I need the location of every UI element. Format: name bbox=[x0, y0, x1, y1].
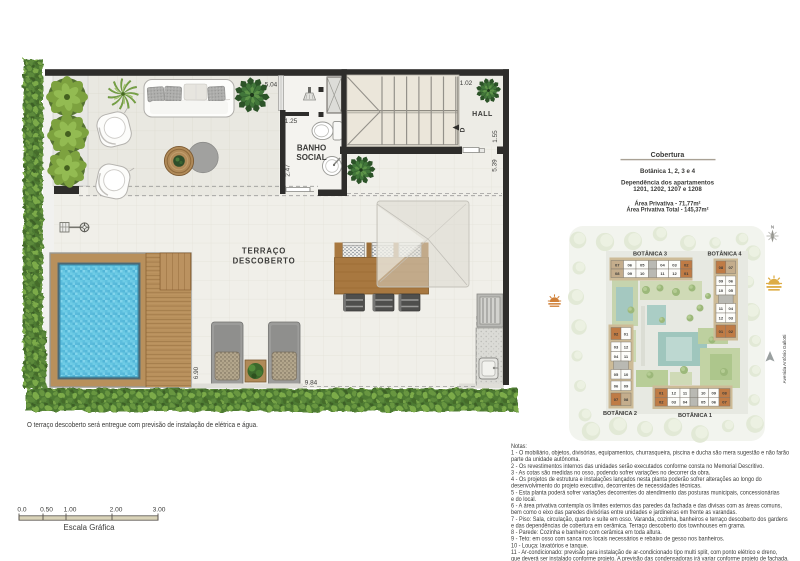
svg-text:O terraço descoberto será entr: O terraço descoberto será entregue com p… bbox=[27, 422, 258, 429]
svg-text:11: 11 bbox=[624, 354, 629, 359]
svg-text:1 - O mobiliário, objetos, div: 1 - O mobiliário, objetos, divisórias, e… bbox=[511, 450, 790, 456]
svg-text:Botânica 1, 2, 3 e 4: Botânica 1, 2, 3 e 4 bbox=[640, 168, 695, 175]
svg-text:Avenida Antônio Gallotti: Avenida Antônio Gallotti bbox=[782, 335, 787, 384]
svg-text:11: 11 bbox=[660, 271, 665, 276]
svg-text:11: 11 bbox=[683, 391, 688, 396]
svg-text:1.25: 1.25 bbox=[285, 118, 298, 125]
svg-text:04: 04 bbox=[660, 263, 665, 268]
svg-text:12: 12 bbox=[672, 391, 677, 396]
svg-text:01: 01 bbox=[719, 329, 724, 334]
svg-text:SOCIAL: SOCIAL bbox=[296, 153, 326, 162]
svg-text:06: 06 bbox=[712, 400, 717, 405]
svg-text:10 - Louça: lavatórios e tanqu: 10 - Louça: lavatórios e tanque. bbox=[511, 543, 589, 549]
svg-text:02: 02 bbox=[614, 331, 619, 336]
svg-text:03: 03 bbox=[672, 263, 677, 268]
svg-text:BOTÂNICA 1: BOTÂNICA 1 bbox=[678, 412, 712, 419]
svg-text:e das dependências de cobertur: e das dependências de cobertura em cerâm… bbox=[511, 523, 746, 529]
svg-text:11: 11 bbox=[719, 306, 724, 311]
svg-text:D: D bbox=[460, 127, 467, 132]
svg-text:HALL: HALL bbox=[472, 111, 493, 118]
svg-text:3.00: 3.00 bbox=[153, 507, 166, 514]
svg-text:09: 09 bbox=[628, 271, 633, 276]
svg-text:08: 08 bbox=[722, 391, 727, 396]
svg-text:07: 07 bbox=[728, 265, 733, 270]
svg-text:10: 10 bbox=[719, 288, 724, 293]
svg-text:6.90: 6.90 bbox=[193, 366, 200, 379]
svg-text:2 - Os revestimentos internos: 2 - Os revestimentos internos das unidad… bbox=[511, 464, 764, 470]
svg-text:07: 07 bbox=[722, 400, 727, 405]
svg-text:parte da unidade autônoma.: parte da unidade autônoma. bbox=[511, 457, 580, 463]
svg-text:03: 03 bbox=[614, 345, 619, 350]
svg-text:02: 02 bbox=[659, 400, 664, 405]
svg-text:03: 03 bbox=[728, 316, 733, 321]
svg-text:9 - Teto: em osso com sanca no: 9 - Teto: em osso com sanca nos locais n… bbox=[511, 536, 725, 542]
svg-text:05: 05 bbox=[614, 372, 619, 377]
svg-text:3 - As cotas são medidas no os: 3 - As cotas são medidas no osso, podend… bbox=[511, 470, 711, 476]
svg-text:06: 06 bbox=[628, 263, 633, 268]
svg-text:BANHO: BANHO bbox=[297, 144, 326, 153]
svg-text:01: 01 bbox=[624, 331, 629, 336]
svg-text:Notas:: Notas: bbox=[511, 444, 527, 450]
svg-text:01: 01 bbox=[684, 271, 689, 276]
svg-text:Área Privativa Total - 145,37m: Área Privativa Total - 145,37m² bbox=[627, 206, 709, 213]
svg-text:N: N bbox=[771, 225, 774, 230]
svg-text:10: 10 bbox=[640, 271, 645, 276]
svg-text:1.02: 1.02 bbox=[460, 80, 473, 87]
svg-text:0.0: 0.0 bbox=[17, 507, 26, 514]
svg-text:desenvolvimento do projeto exe: desenvolvimento do projeto executivo, de… bbox=[511, 483, 702, 489]
svg-text:10: 10 bbox=[701, 391, 706, 396]
svg-text:02: 02 bbox=[684, 263, 689, 268]
svg-text:5.39: 5.39 bbox=[492, 159, 499, 172]
svg-text:08: 08 bbox=[719, 265, 724, 270]
svg-text:que deverá ser instalado confo: que deverá ser instalado conforme projet… bbox=[511, 556, 789, 561]
svg-text:05: 05 bbox=[640, 263, 645, 268]
svg-text:BOTÂNICA 4: BOTÂNICA 4 bbox=[708, 251, 742, 258]
svg-text:5.04: 5.04 bbox=[265, 82, 278, 89]
svg-text:8 - Parede: Cozinha e banheiro: 8 - Parede: Cozinha e banheiro com cerâm… bbox=[511, 530, 662, 536]
svg-text:06: 06 bbox=[614, 384, 619, 389]
svg-text:6 - A área privativa contempla: 6 - A área privativa contempla os limite… bbox=[511, 503, 782, 509]
svg-text:09: 09 bbox=[712, 391, 717, 396]
svg-text:08: 08 bbox=[615, 271, 620, 276]
svg-text:5 - Esta planta poderá sofrer: 5 - Esta planta poderá sofrer variações … bbox=[511, 490, 780, 496]
svg-text:Escala Gráfica: Escala Gráfica bbox=[64, 523, 116, 532]
svg-text:4 - Os projetos de estrutura e: 4 - Os projetos de estrutura e instalaçõ… bbox=[511, 477, 762, 483]
svg-text:10: 10 bbox=[624, 372, 629, 377]
svg-text:2.00: 2.00 bbox=[110, 507, 123, 514]
svg-text:04: 04 bbox=[728, 306, 733, 311]
svg-text:2.47: 2.47 bbox=[285, 164, 292, 177]
svg-text:04: 04 bbox=[683, 400, 688, 405]
svg-text:12: 12 bbox=[624, 345, 629, 350]
svg-text:07: 07 bbox=[615, 263, 620, 268]
svg-text:BOTÂNICA 2: BOTÂNICA 2 bbox=[603, 410, 637, 417]
svg-text:01: 01 bbox=[659, 391, 664, 396]
svg-text:12: 12 bbox=[672, 271, 677, 276]
svg-text:06: 06 bbox=[728, 279, 733, 284]
svg-text:04: 04 bbox=[614, 354, 619, 359]
svg-text:11 - Ar-condicionado: previsão: 11 - Ar-condicionado: previsão para inst… bbox=[511, 550, 778, 556]
svg-text:0.50: 0.50 bbox=[40, 507, 53, 514]
svg-text:05: 05 bbox=[701, 400, 706, 405]
svg-text:09: 09 bbox=[719, 279, 724, 284]
svg-text:7 - Piso: Sala, circulação, qu: 7 - Piso: Sala, circulação, quarto e suí… bbox=[511, 517, 788, 523]
svg-text:9.84: 9.84 bbox=[305, 380, 318, 387]
svg-text:05: 05 bbox=[728, 288, 733, 293]
svg-text:12: 12 bbox=[719, 316, 724, 321]
svg-text:02: 02 bbox=[728, 329, 733, 334]
svg-text:e do local.: e do local. bbox=[511, 497, 536, 503]
svg-text:07: 07 bbox=[614, 397, 619, 402]
svg-text:1201, 1202, 1207 e 1208: 1201, 1202, 1207 e 1208 bbox=[633, 186, 702, 193]
svg-text:BOTÂNICA 3: BOTÂNICA 3 bbox=[633, 251, 667, 258]
svg-text:08: 08 bbox=[624, 397, 629, 402]
svg-text:1.00: 1.00 bbox=[64, 507, 77, 514]
svg-text:03: 03 bbox=[672, 400, 677, 405]
svg-text:Cobertura: Cobertura bbox=[651, 152, 685, 159]
svg-text:09: 09 bbox=[624, 384, 629, 389]
svg-text:bem como o eixo das paredes di: bem como o eixo das paredes divisórias e… bbox=[511, 510, 737, 516]
svg-text:DESCOBERTO: DESCOBERTO bbox=[233, 257, 296, 266]
svg-text:TERRAÇO: TERRAÇO bbox=[242, 247, 286, 256]
svg-text:1.55: 1.55 bbox=[492, 130, 499, 143]
